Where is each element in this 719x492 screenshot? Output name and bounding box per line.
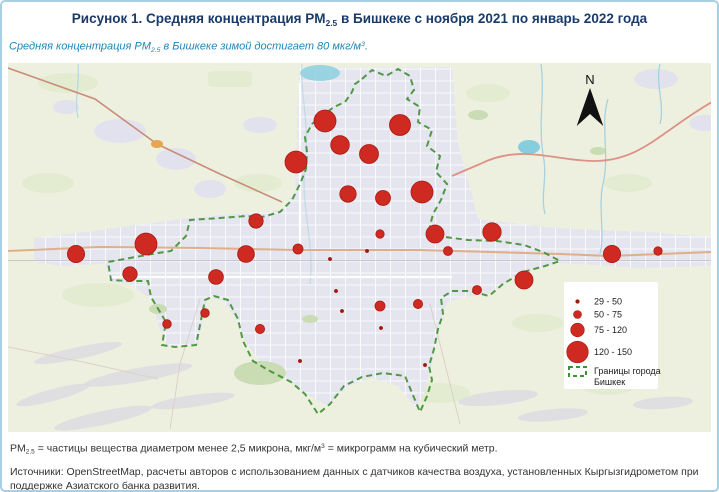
pm25-bubble	[340, 309, 344, 313]
pm25-bubble	[238, 245, 255, 262]
pm25-bubble	[249, 214, 263, 228]
title-text-2: в Бишкеке с ноября 2021 по январь 2022 г…	[337, 11, 647, 26]
pm25-bubble	[360, 144, 379, 163]
subtitle-text-3: .	[365, 40, 368, 52]
pm25-bubble	[390, 114, 411, 135]
pm25-bubble	[483, 223, 501, 241]
figure-title: Рисунок 1. Средняя концентрация PM2.5 в …	[16, 10, 703, 32]
legend-boundary-label-1: Границы города	[594, 366, 661, 376]
pm25-bubble	[603, 245, 620, 262]
pm25-bubble	[314, 110, 336, 132]
pm25-bubble	[135, 233, 157, 255]
pm25-bubble	[340, 186, 356, 202]
title-subscript: 2.5	[326, 18, 338, 28]
pm25-bubble	[255, 324, 264, 333]
pm25-bubble	[423, 363, 427, 367]
title-text: Рисунок 1. Средняя концентрация PM	[72, 11, 326, 26]
map-legend: 29 - 5050 - 7575 - 120120 - 150 Границы …	[564, 282, 661, 389]
subtitle-subscript: 2.5	[151, 47, 160, 54]
legend-size-swatch	[576, 299, 580, 303]
pm25-bubble	[285, 151, 307, 173]
pm25-bubble	[209, 269, 224, 284]
legend-size-swatch	[571, 323, 585, 337]
pm25-bubble	[163, 319, 172, 328]
pm25-bubble	[473, 285, 482, 294]
legend-size-swatch	[567, 341, 589, 363]
footnote-text: PM	[10, 442, 26, 454]
pm25-bubble	[67, 245, 84, 262]
north-label: N	[585, 72, 594, 87]
legend-size-label: 120 - 150	[594, 347, 632, 357]
sources: Источники: OpenStreetMap, расчеты авторо…	[10, 465, 709, 492]
legend-size-label: 50 - 75	[594, 309, 622, 319]
figure-container: Рисунок 1. Средняя концентрация PM2.5 в …	[0, 0, 719, 492]
pm25-bubble	[328, 257, 332, 261]
pm25-bubble	[123, 267, 137, 281]
footnote-text-2: = частицы вещества диаметром менее 2,5 м…	[35, 442, 321, 454]
pm25-bubble	[365, 249, 369, 253]
figure-subtitle: Средняя концентрация PM2.5 в Бишкеке зим…	[9, 38, 711, 58]
pm25-bubble	[379, 326, 383, 330]
legend-boundary-label-2: Бишкек	[594, 377, 625, 387]
pm25-bubble	[201, 308, 210, 317]
legend-size-label: 75 - 120	[594, 325, 627, 335]
footnote-subscript: 2.5	[26, 448, 35, 455]
subtitle-text: Средняя концентрация PM	[9, 40, 151, 52]
legend-size-label: 29 - 50	[594, 296, 622, 306]
footnote: PM2.5 = частицы вещества диаметром менее…	[10, 440, 709, 459]
subtitle-text-2: в Бишкеке зимой достигает 80 мкг/м	[160, 40, 361, 52]
pm25-bubble	[331, 135, 350, 154]
pm25-bubble	[411, 181, 433, 203]
pm25-bubble	[376, 190, 391, 205]
map: N 29 - 5050 - 7575 - 120120 - 150 Границ…	[8, 63, 711, 432]
pm25-bubble	[293, 244, 303, 254]
pm25-bubble	[375, 301, 385, 311]
pm25-bubble	[298, 359, 302, 363]
pm25-bubble	[413, 299, 422, 308]
pm25-bubble	[334, 289, 338, 293]
pm25-bubble	[376, 230, 384, 238]
pm25-bubble	[426, 225, 444, 243]
footnote-text-3: = микрограмм на кубический метр.	[325, 442, 498, 454]
map-svg: N 29 - 5050 - 7575 - 120120 - 150 Границ…	[8, 63, 711, 432]
pm25-bubble	[515, 271, 533, 289]
pm25-bubble	[444, 246, 453, 255]
pm25-bubble	[654, 247, 662, 255]
legend-size-swatch	[574, 310, 582, 318]
